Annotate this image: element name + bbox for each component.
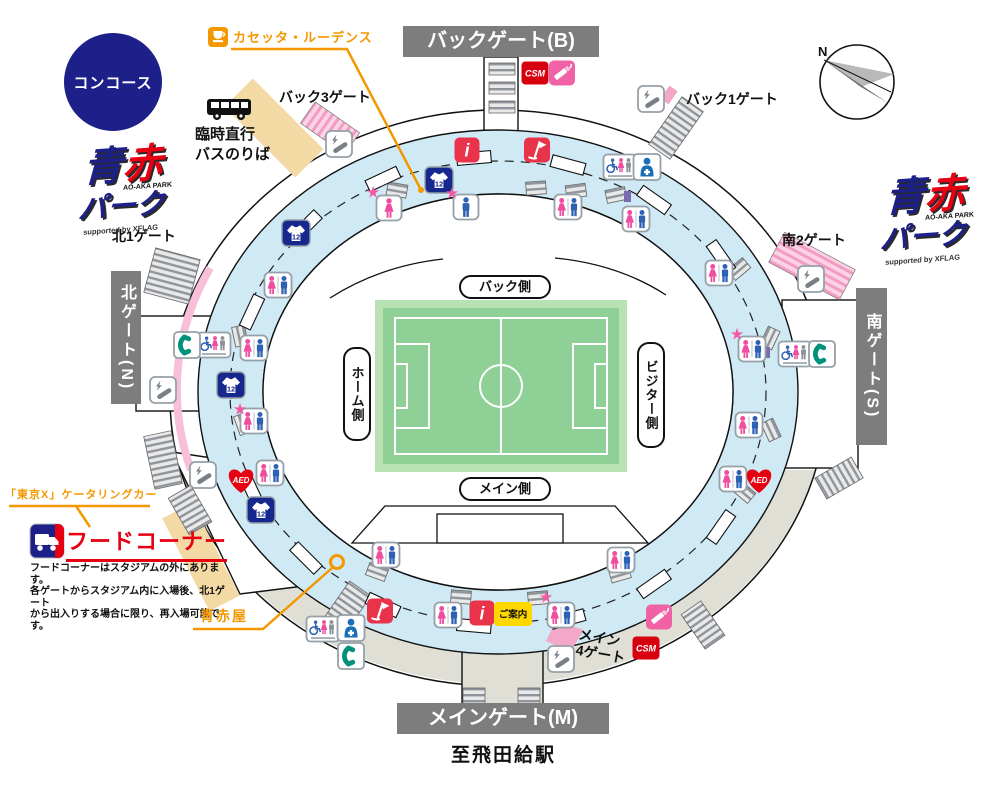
ticket-gate-icon <box>150 377 176 403</box>
toilet-icon <box>555 195 582 220</box>
ticket-gate-icon <box>326 131 352 157</box>
first-aid-icon <box>634 154 661 180</box>
toilet-icon <box>257 461 284 486</box>
tokyo-x-catering-label: 「東京X」ケータリングカー <box>5 486 157 502</box>
guide-badge: ご案内 <box>494 602 532 626</box>
south2-gate-label: 南2ゲート <box>782 230 846 250</box>
food-truck-icon <box>30 524 64 558</box>
star-marker <box>445 186 459 203</box>
star-marker <box>366 185 380 202</box>
accessible-toilet-icon <box>198 333 231 358</box>
main-gate-banner: メインゲート(M) <box>397 703 609 734</box>
back-gate-banner: バックゲート(B) <box>403 26 599 57</box>
casetta-icon <box>208 27 228 47</box>
flag-icon <box>367 599 393 624</box>
stadium-map-graphics: 12 i CSM <box>0 0 1000 787</box>
field-visitor-label: ビジター側 <box>637 342 665 448</box>
goods-shop-icon <box>217 372 245 398</box>
bus-stop-line1: 臨時直行 <box>195 125 270 145</box>
field-main-label: メイン側 <box>459 477 551 501</box>
flag-icon <box>524 138 550 163</box>
food-note-line1: フードコーナーはスタジアムの外にあります。 <box>30 563 230 586</box>
casetta-ludens-label: カセッタ・ルーデンス <box>233 27 373 46</box>
back1-gate-label: バック1ゲート <box>686 89 778 109</box>
goods-shop-icon <box>282 220 310 246</box>
aoakaya-label: 青赤屋 <box>200 606 248 626</box>
toilet-icon <box>736 413 763 438</box>
stadium-concourse-map: 12 i CSM <box>0 0 1000 787</box>
ticket-gate-icon <box>638 86 664 112</box>
south-gate-banner: 南ゲート(S) <box>856 288 887 445</box>
phone-icon <box>338 643 364 669</box>
guide-text: ご案内 <box>499 609 528 621</box>
csm-booth-icon <box>522 62 549 85</box>
smoking-area-icon <box>549 61 575 86</box>
bus-stop-label: 臨時直行 バスのりば <box>195 125 270 164</box>
toilet-icon <box>373 543 400 568</box>
star-marker <box>539 590 553 607</box>
toilet-icon <box>608 548 635 573</box>
toilet-icon <box>241 336 268 361</box>
ticket-gate-icon <box>798 266 824 292</box>
first-aid-icon <box>338 615 365 641</box>
pitch <box>375 300 627 472</box>
logo-park-text: パーク <box>65 189 178 226</box>
bus-stop-line2: バスのりば <box>195 145 270 165</box>
station-label: 至飛田給駅 <box>451 740 556 767</box>
accessible-toilet-icon <box>307 617 340 642</box>
information-icon <box>470 601 495 626</box>
phone-icon <box>174 332 200 358</box>
phone-icon <box>809 341 835 367</box>
star-marker <box>730 327 744 344</box>
back3-gate-label: バック3ゲート <box>279 87 371 107</box>
womens-toilet-icon <box>377 196 402 221</box>
toilet-icon <box>265 273 292 298</box>
ticket-gate-icon <box>548 646 574 672</box>
field-back-label: バック側 <box>459 275 551 299</box>
ticket-gate-icon <box>190 462 216 488</box>
accessible-toilet-icon <box>779 342 812 367</box>
star-marker <box>233 402 247 419</box>
toilet-icon <box>720 467 747 492</box>
bus-icon <box>207 99 251 120</box>
smoking-area-icon <box>646 605 672 630</box>
toilet-icon <box>623 207 650 232</box>
logo-park-text: パーク <box>867 219 980 256</box>
toilet-icon <box>706 261 733 286</box>
food-corner-title: フードコーナー <box>66 524 227 562</box>
goods-shop-icon <box>247 497 275 523</box>
aoaka-park-logo: 青赤 AO-AKA PARK パーク supported by XFLAG <box>867 172 982 268</box>
csm-booth-icon <box>633 637 660 660</box>
information-icon <box>455 138 480 163</box>
aoaka-park-logo: 青赤 AO-AKA PARK パーク supported by XFLAG <box>65 142 180 238</box>
toilet-icon <box>435 603 462 628</box>
compass-north-label: N <box>818 44 827 59</box>
field-home-label: ホーム側 <box>343 347 371 441</box>
north-gate-banner: 北ゲート(N) <box>111 271 141 404</box>
concourse-badge: コンコース <box>64 33 162 131</box>
accessible-toilet-icon <box>604 155 637 180</box>
compass: N <box>818 44 894 119</box>
